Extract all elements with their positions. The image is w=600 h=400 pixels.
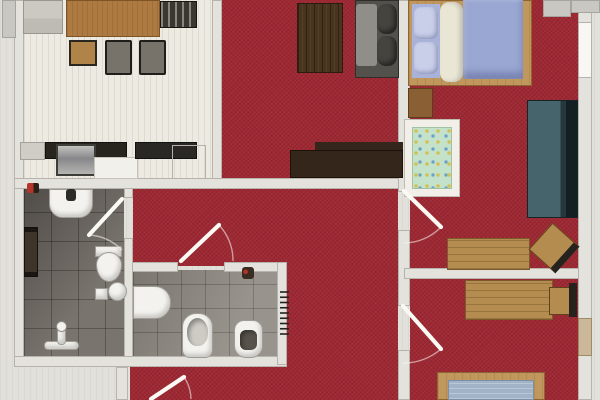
bathroom-east-wall-top bbox=[124, 188, 133, 198]
desk2 bbox=[465, 280, 553, 320]
south-wall-band bbox=[14, 178, 404, 189]
counter-white-cabinet bbox=[94, 157, 138, 179]
counter-cabinet-left bbox=[20, 142, 45, 160]
desk1 bbox=[447, 238, 530, 270]
appliance-outline bbox=[172, 145, 206, 179]
red-object-kitchen bbox=[27, 183, 39, 193]
desk2-chair-back bbox=[569, 283, 577, 317]
bathroom-sink-faucet bbox=[66, 189, 76, 201]
dining-chair-right bbox=[139, 40, 166, 75]
sofa-seats bbox=[356, 4, 377, 66]
dining-chair-mid bbox=[105, 40, 132, 75]
bathroom-small-box bbox=[95, 288, 108, 300]
nightstand bbox=[408, 88, 433, 118]
wc-small-object bbox=[242, 267, 254, 279]
bed1-duvet bbox=[463, 0, 523, 79]
kitchen-sink bbox=[56, 144, 96, 176]
wc-toilet-opening bbox=[240, 330, 257, 350]
right-wall-wood-door bbox=[578, 318, 592, 356]
right-wall-window bbox=[578, 22, 592, 78]
teal-daybed bbox=[527, 100, 578, 218]
bed2-mattress bbox=[448, 380, 534, 400]
wc-basin bbox=[133, 286, 171, 319]
coffee-table bbox=[297, 3, 343, 73]
bed1-pillow-a bbox=[414, 7, 438, 39]
crib-mattress bbox=[412, 127, 452, 189]
balcony-slab-b bbox=[571, 0, 600, 13]
sofa-back-cushion-a bbox=[377, 4, 397, 34]
hallway-floor-top bbox=[133, 188, 398, 266]
wc-bidet-bowl bbox=[187, 318, 208, 346]
bed1-blanket-roll bbox=[440, 2, 463, 82]
shower-head-knob bbox=[56, 321, 67, 332]
hallway-east-wall-low bbox=[398, 350, 410, 400]
hallway-floor-bottom bbox=[130, 362, 287, 400]
bathroom-east-wall-low bbox=[124, 238, 133, 357]
gray-cabinet bbox=[23, 0, 63, 34]
sofa-back-cushion-b bbox=[377, 36, 397, 66]
wc-east-wall bbox=[277, 262, 287, 365]
towel-radiator bbox=[24, 227, 38, 277]
entrance-wall bbox=[116, 367, 128, 400]
floor-plan bbox=[0, 0, 600, 400]
balcony-slab-a bbox=[543, 0, 571, 17]
bed1-pillow-b bbox=[414, 42, 438, 74]
hallway-floor-right bbox=[287, 264, 398, 400]
bathroom-stool bbox=[108, 282, 127, 301]
dining-chair-top bbox=[160, 1, 197, 28]
dining-chair-left bbox=[69, 40, 97, 66]
tv-sideboard bbox=[290, 150, 403, 178]
left-edge-pillar bbox=[2, 0, 16, 38]
dining-living-wall bbox=[212, 0, 222, 188]
dining-table bbox=[66, 0, 160, 37]
